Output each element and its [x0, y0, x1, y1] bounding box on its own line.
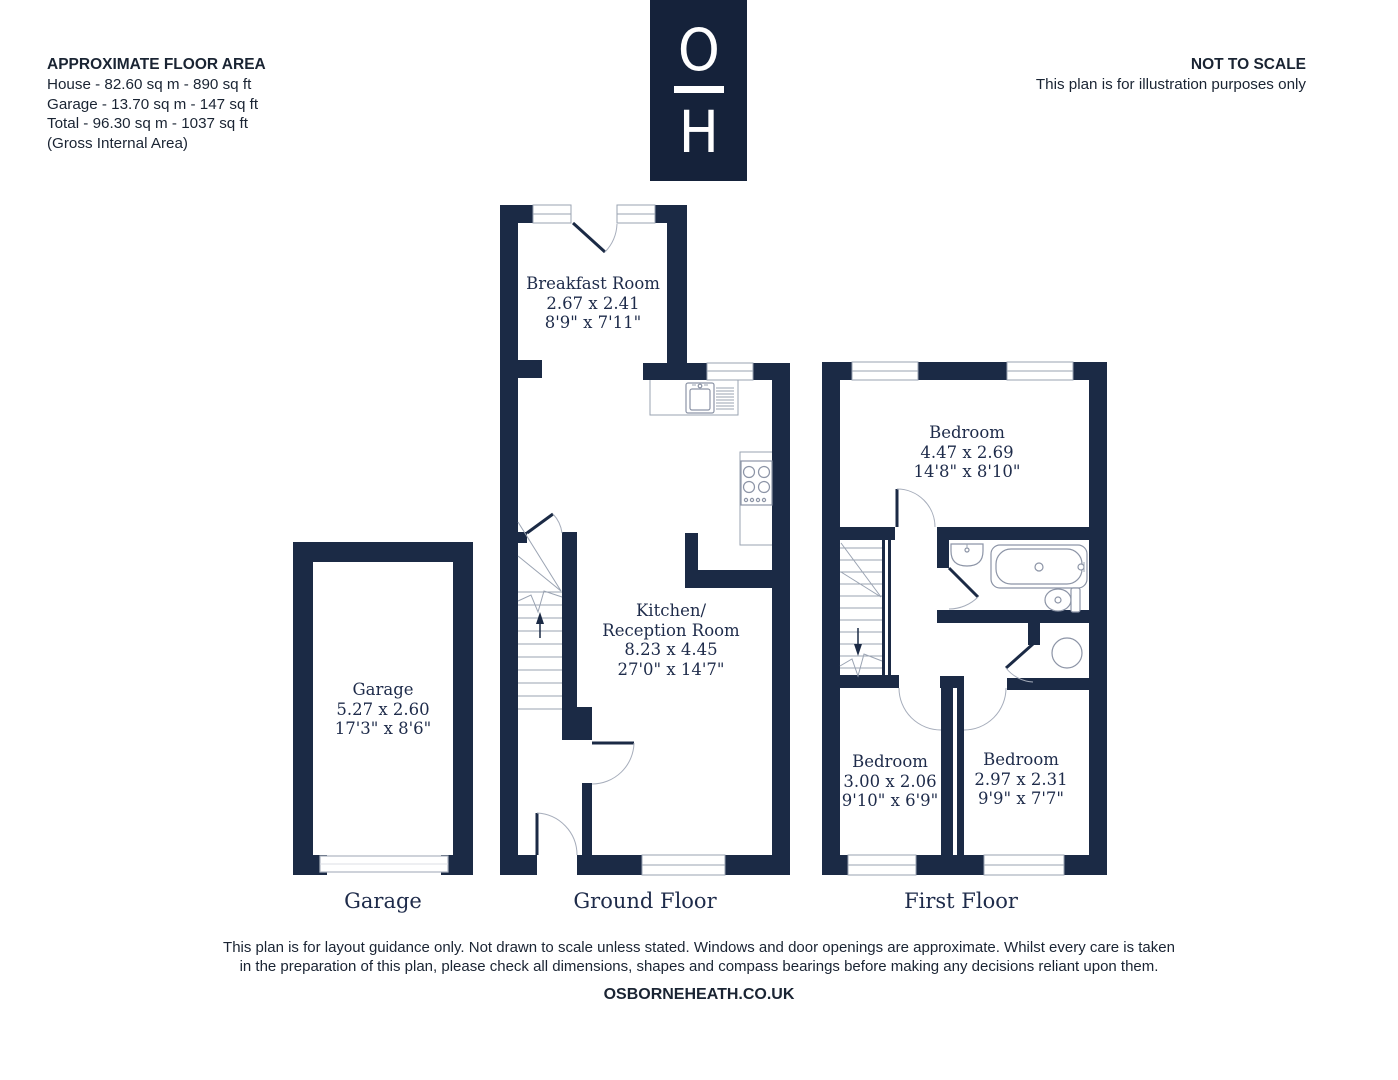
bedroom-right-label: Bedroom 2.97 x 2.31 9'9" x 7'7"	[911, 750, 1131, 809]
room-name: Garage	[273, 680, 493, 700]
disclaimer-line2: in the preparation of this plan, please …	[0, 957, 1398, 976]
logo-letter-h: H	[678, 101, 718, 163]
room-dims-metric: 2.67 x 2.41	[483, 294, 703, 314]
bedroom-right-window	[984, 855, 1064, 875]
caption-first-floor: First Floor	[851, 889, 1071, 913]
bedroom-main-window-right	[1007, 362, 1073, 380]
floor-area-total: Total - 96.30 sq m - 1037 sq ft	[47, 114, 377, 134]
room-dims-imperial: 8'9" x 7'11"	[483, 313, 703, 333]
drainer	[716, 388, 734, 409]
bathtub	[991, 545, 1087, 588]
bedroom-left-window	[848, 855, 916, 875]
stairs-up-arrow	[536, 612, 544, 638]
room-name: Bedroom	[857, 423, 1077, 443]
caption-ground-floor: Ground Floor	[535, 889, 755, 913]
floor-area-note: (Gross Internal Area)	[47, 134, 377, 154]
garage-door	[320, 856, 448, 872]
kitchen-window	[707, 363, 753, 380]
kitchen-sink	[686, 383, 714, 413]
disclaimer: This plan is for layout guidance only. N…	[0, 938, 1398, 976]
room-dims-imperial: 14'8" x 8'10"	[857, 462, 1077, 482]
bedroom-left-door	[899, 688, 941, 730]
room-dims-metric: 5.27 x 2.60	[273, 700, 493, 720]
stairs-first	[840, 540, 891, 676]
stairs-ground	[518, 522, 562, 709]
room-dims-imperial: 17'3" x 8'6"	[273, 719, 493, 739]
caption-garage: Garage	[273, 889, 493, 913]
garage-room-label: Garage 5.27 x 2.60 17'3" x 8'6"	[273, 680, 493, 739]
scale-note: NOT TO SCALE This plan is for illustrati…	[906, 55, 1306, 95]
osborne-heath-logo: O H	[650, 0, 747, 181]
wash-basin	[951, 544, 983, 566]
logo-divider	[674, 86, 724, 93]
kitchen-reception-label: Kitchen/ Reception Room 8.23 x 4.45 27'0…	[561, 601, 781, 679]
floorplan-page: APPROXIMATE FLOOR AREA House - 82.60 sq …	[0, 0, 1398, 1080]
hob	[741, 461, 772, 505]
toilet	[1045, 588, 1080, 612]
bedroom-main-label: Bedroom 4.47 x 2.69 14'8" x 8'10"	[857, 423, 1077, 482]
breakfast-window-left	[533, 205, 571, 223]
breakfast-room-label: Breakfast Room 2.67 x 2.41 8'9" x 7'11"	[483, 274, 703, 333]
bathroom-door	[949, 568, 978, 609]
reception-window	[642, 855, 725, 875]
wc-door	[1006, 644, 1033, 682]
not-to-scale-subtitle: This plan is for illustration purposes o…	[906, 75, 1306, 95]
room-name: Breakfast Room	[483, 274, 703, 294]
room-dims-imperial: 9'9" x 7'7"	[911, 789, 1131, 809]
floor-area-garage: Garage - 13.70 sq m - 147 sq ft	[47, 95, 377, 115]
room-dims-metric: 2.97 x 2.31	[911, 770, 1131, 790]
room-dims-imperial: 27'0" x 14'7"	[561, 660, 781, 680]
room-dims-metric: 4.47 x 2.69	[857, 443, 1077, 463]
breakfast-window-right	[617, 205, 655, 223]
breakfast-door	[573, 223, 617, 252]
floor-area-title: APPROXIMATE FLOOR AREA	[47, 55, 377, 75]
bedroom-main-door	[897, 489, 935, 527]
floor-area-house: House - 82.60 sq m - 890 sq ft	[47, 75, 377, 95]
disclaimer-line1: This plan is for layout guidance only. N…	[0, 938, 1398, 957]
front-door	[537, 813, 577, 855]
bedroom-right-door	[964, 688, 1006, 730]
floor-area-summary: APPROXIMATE FLOOR AREA House - 82.60 sq …	[47, 55, 377, 153]
not-to-scale-title: NOT TO SCALE	[906, 55, 1306, 75]
website-url: OSBORNEHEATH.CO.UK	[0, 986, 1398, 1004]
logo-letter-o: O	[677, 19, 719, 81]
room-name2: Reception Room	[561, 621, 781, 641]
room-name: Bedroom	[911, 750, 1131, 770]
bedroom-main-window-left	[852, 362, 918, 380]
shower-circle	[1052, 638, 1082, 668]
stair-door	[527, 514, 562, 533]
room-name: Kitchen/	[561, 601, 781, 621]
kitchen-door	[592, 743, 634, 784]
room-dims-metric: 8.23 x 4.45	[561, 640, 781, 660]
